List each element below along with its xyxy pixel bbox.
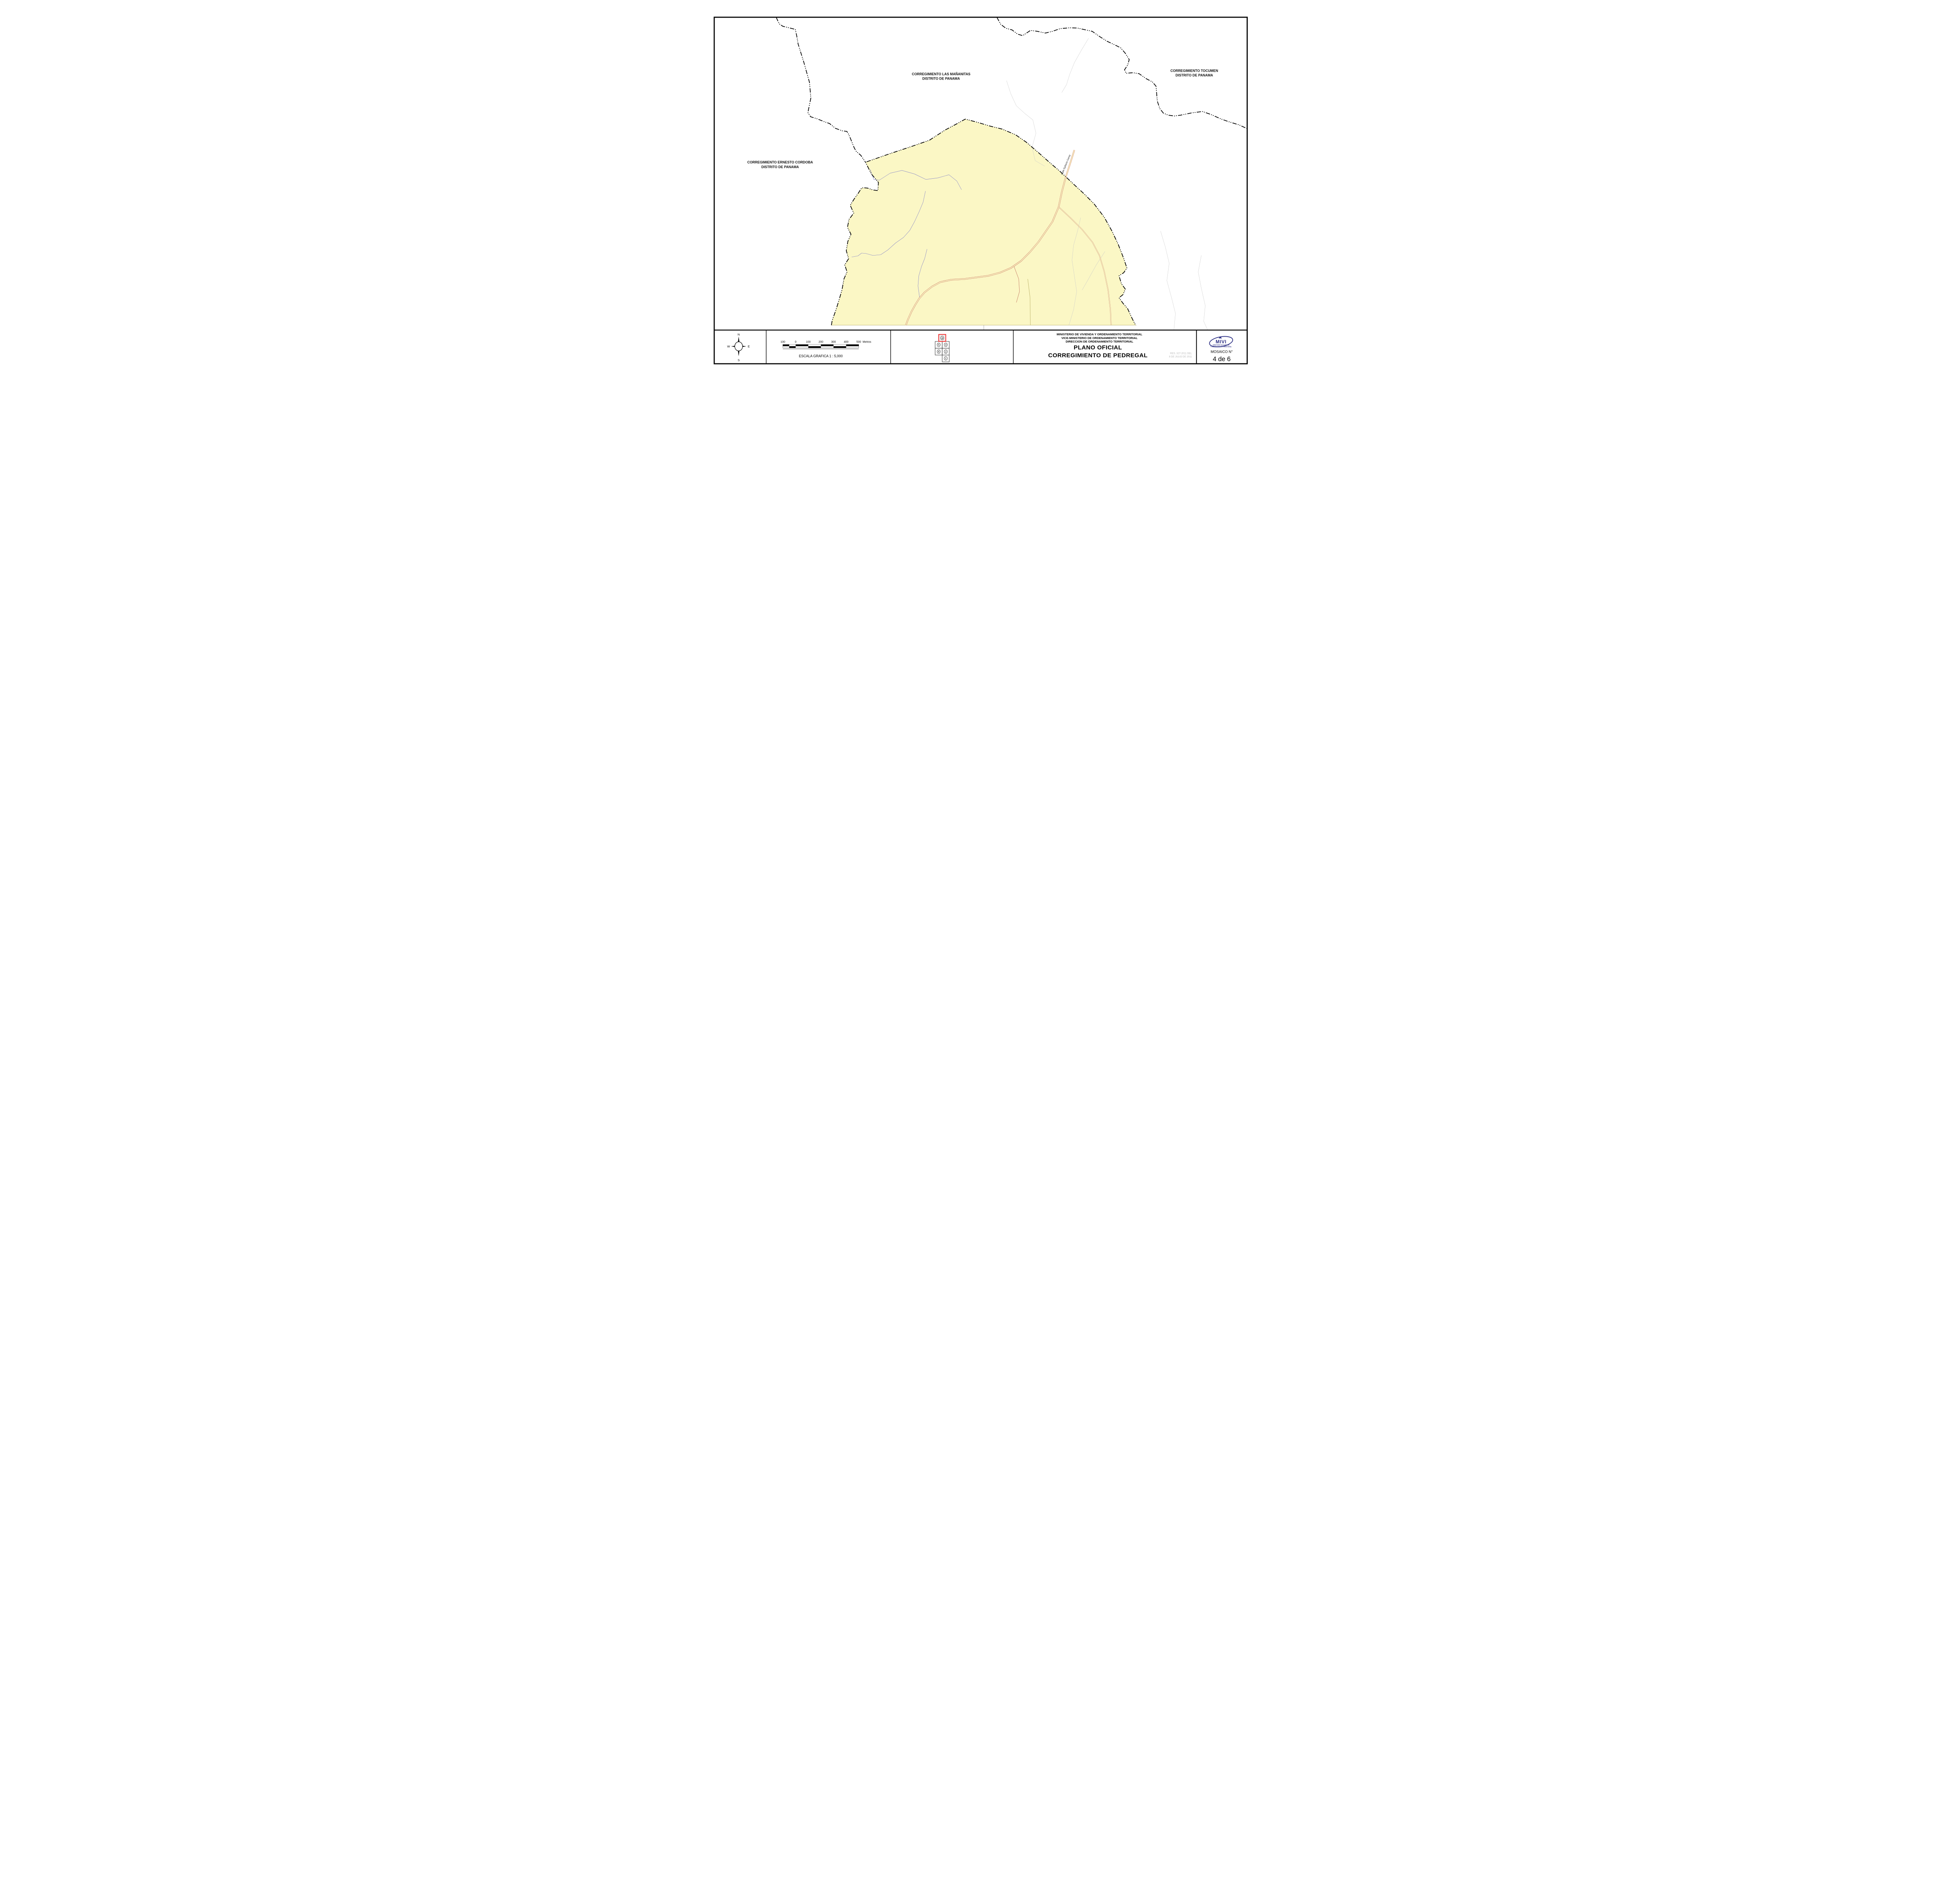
label-tocumen-2: DISTRITO DE PANAMA	[1175, 73, 1213, 77]
mosaic-tile-1: 1	[945, 357, 946, 360]
mosaic-tile-6: 6	[938, 351, 939, 354]
mosaic-tile-5: 5	[938, 344, 939, 346]
compass-n: N	[737, 333, 739, 336]
logo-sub1: MINISTERIO DE VIVIENDA	[1212, 344, 1229, 346]
plan-title: PLANO OFICIAL	[1074, 344, 1122, 351]
scale-tick-label: 100	[806, 340, 810, 344]
resolution-line2: 8 DE JULIO DE 2011	[1169, 355, 1192, 358]
ministry-line3: DIRECCION DE ORDENAMIENTO TERRITORIAL	[1065, 340, 1133, 343]
mosaico-number: 4 de 6	[1212, 355, 1230, 363]
scale-tick-label: 200	[818, 340, 823, 344]
map-sheet-svg: CORREGIMIENTO LAS MAÑANITAS DISTRITO DE …	[698, 0, 1262, 376]
scale-tick-label: 100	[780, 340, 785, 344]
logo-sub2: Y ORDENAMIENTO TERRITORIAL	[1210, 346, 1231, 348]
resolution-line1: RES. 327-2011 DEL	[1170, 352, 1192, 355]
mosaic-tile-2: 2	[945, 351, 946, 354]
scale-tick-label: 400	[844, 340, 848, 344]
mosaico-label: MOSAICO N°	[1210, 350, 1233, 354]
compass-circle	[735, 342, 742, 351]
plan-subtitle: CORREGIMIENTO DE PEDREGAL	[1048, 352, 1147, 359]
scale-unit: Metros	[862, 340, 871, 344]
mosaic-tile-4: 4	[941, 337, 943, 340]
label-tocumen-1: CORREGIMIENTO TOCUMEN	[1170, 69, 1218, 73]
logo-name: MIVI	[1216, 339, 1227, 344]
compass-w: W	[727, 345, 730, 348]
scale-tick-label: 300	[831, 340, 836, 344]
ministry-line2: VICE-MINISTERIO DE ORDENAMIENTO TERRITOR…	[1061, 336, 1138, 340]
label-mananitas-1: CORREGIMIENTO LAS MAÑANITAS	[912, 72, 971, 76]
compass-s: S	[737, 358, 739, 362]
mosaic-tile-3: 3	[945, 344, 946, 346]
ministry-line1: MINISTERIO DE VIVIENDA Y ORDENAMIENTO TE…	[1056, 332, 1142, 336]
plan-sheet: CORREGIMIENTO LAS MAÑANITAS DISTRITO DE …	[698, 0, 1262, 376]
compass-e: E	[748, 345, 750, 348]
scale-caption: ESCALA GRAFICA 1 : 5,000	[799, 354, 843, 358]
scale-tick-label: 0	[795, 340, 796, 344]
label-ernesto-2: DISTRITO DE PANAMA	[761, 165, 799, 169]
label-mananitas-2: DISTRITO DE PANAMA	[922, 76, 960, 80]
scale-tick-label: 500	[856, 340, 861, 344]
label-ernesto-1: CORREGIMIENTO ERNESTO CORDOBA	[747, 160, 813, 164]
